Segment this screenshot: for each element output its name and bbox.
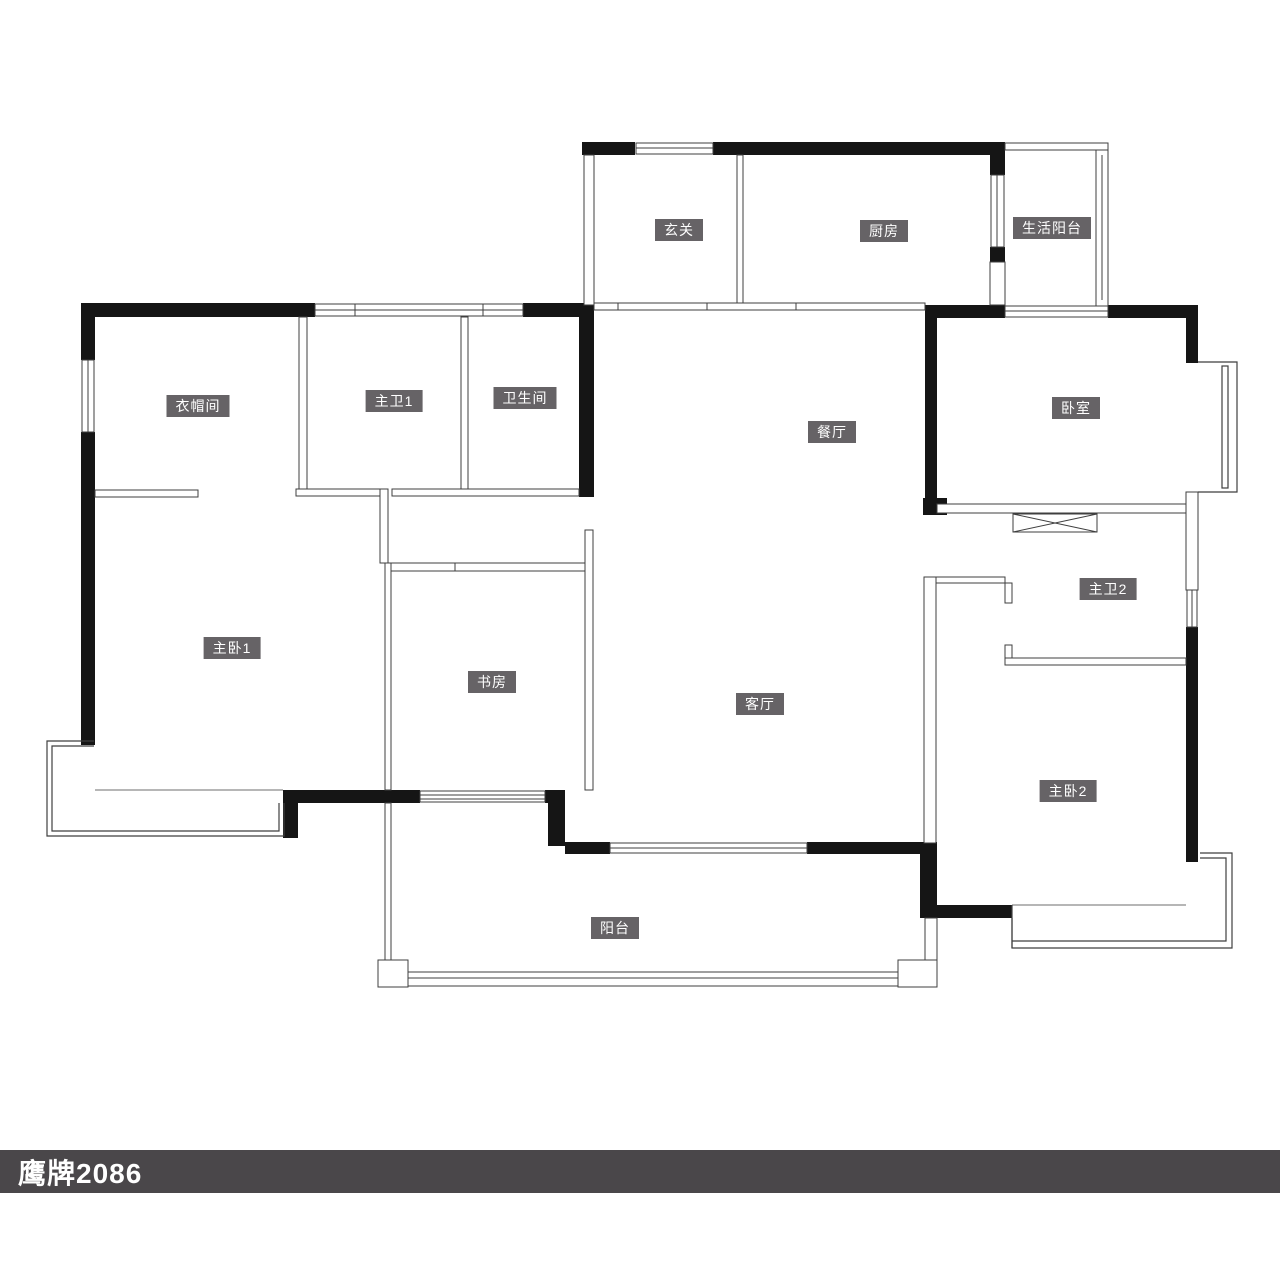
brand-bar: 鹰牌2086 [0,1150,1280,1193]
floor-plan-page: 玄关 厨房 生活阳台 衣帽间 主卫1 卫生间 餐厅 卧室 主卧1 书房 客厅 主… [0,0,1280,1280]
windows [82,143,1197,853]
balcony-railing [378,960,937,987]
thin-walls [95,143,1198,962]
balcony-corner-post [898,960,937,987]
balcony-corner-post [378,960,408,987]
bay-windows [47,362,1237,948]
floor-plan-drawing [0,0,1280,1280]
duct-shaft-box [1013,514,1097,532]
brand-text: 鹰牌2086 [18,1152,142,1192]
